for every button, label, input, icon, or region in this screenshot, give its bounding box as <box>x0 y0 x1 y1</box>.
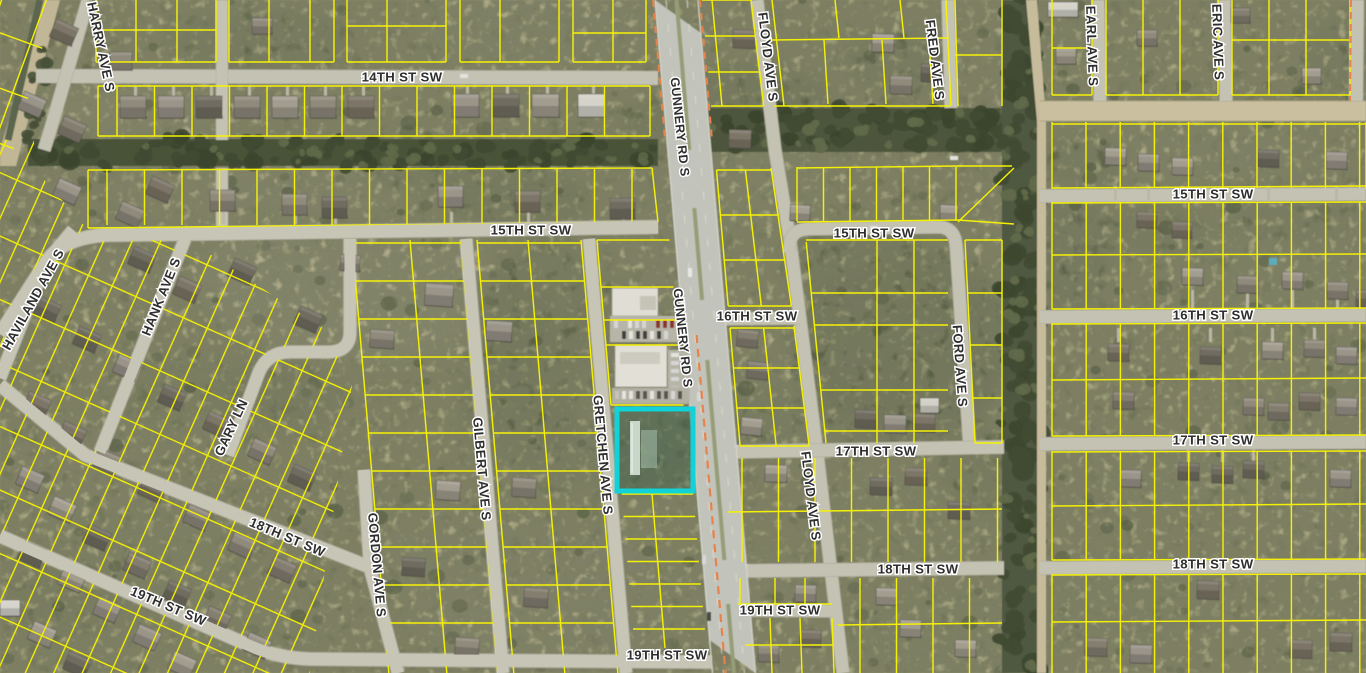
svg-text:15TH ST SW: 15TH ST SW <box>834 225 915 240</box>
svg-text:17TH ST SW: 17TH ST SW <box>836 443 917 458</box>
svg-text:18TH ST SW: 18TH ST SW <box>1173 556 1254 571</box>
svg-text:15TH ST SW: 15TH ST SW <box>491 222 572 237</box>
svg-text:17TH ST SW: 17TH ST SW <box>1173 432 1254 447</box>
svg-text:EARL AVE S: EARL AVE S <box>1083 6 1101 87</box>
svg-text:ERIC AVE S: ERIC AVE S <box>1209 4 1227 81</box>
svg-text:15TH ST SW: 15TH ST SW <box>1173 186 1254 201</box>
svg-text:16TH ST SW: 16TH ST SW <box>717 308 798 323</box>
svg-text:18TH ST SW: 18TH ST SW <box>878 561 959 576</box>
svg-text:16TH ST SW: 16TH ST SW <box>1173 307 1254 322</box>
svg-text:19TH ST SW: 19TH ST SW <box>740 602 821 617</box>
svg-text:19TH ST SW: 19TH ST SW <box>627 647 708 662</box>
svg-text:14TH ST SW: 14TH ST SW <box>362 69 443 84</box>
